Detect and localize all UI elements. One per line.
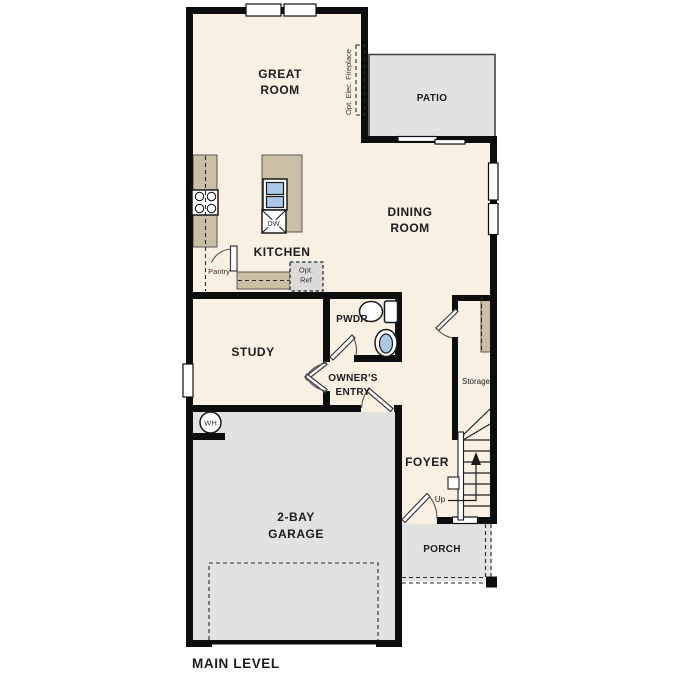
- storage-shelf: [481, 297, 491, 352]
- owners-entry-label: ENTRY: [335, 387, 370, 398]
- floor-plan-drawing: GREAT ROOM PATIO DINING ROOM KITCHEN STU…: [0, 0, 687, 687]
- kitchen-sink-icon: [263, 179, 287, 210]
- great-room-label: ROOM: [260, 83, 299, 97]
- dining-room-label: ROOM: [390, 221, 429, 235]
- water-heater-nook-wall: [186, 433, 225, 440]
- up-label: Up: [435, 495, 446, 504]
- garage-area: [190, 408, 398, 643]
- patio-slider-icon: [398, 137, 437, 142]
- study-label: STUDY: [231, 345, 274, 359]
- opt-fireplace-label: Opt. Elec. Fireplace: [344, 49, 353, 115]
- great-room-window-icon: [284, 4, 316, 16]
- storage-label: Storage: [462, 377, 491, 386]
- garage-label: GARAGE: [268, 527, 324, 541]
- dining-room-label: DINING: [388, 205, 433, 219]
- dishwasher-label: DW: [267, 219, 280, 228]
- powder-label: PWDR: [336, 314, 368, 325]
- water-heater-label: WH: [204, 419, 217, 428]
- porch-label: PORCH: [423, 544, 461, 555]
- great-room-window-icon: [246, 4, 281, 16]
- opt-ref-label: Ref: [300, 276, 313, 285]
- study-window-icon: [183, 364, 193, 397]
- porch-post: [486, 577, 497, 588]
- kitchen-label: KITCHEN: [254, 245, 311, 259]
- patio-label: PATIO: [417, 93, 448, 104]
- front-window-icon: [453, 517, 478, 524]
- plan-title: MAIN LEVEL: [192, 656, 280, 671]
- foyer-label: FOYER: [405, 455, 449, 469]
- great-room-label: GREAT: [258, 67, 302, 81]
- pantry-label: Pantry: [208, 267, 230, 276]
- dining-window-icon: [489, 204, 499, 235]
- opt-ref-label: Opt.: [299, 266, 313, 275]
- powder-sink-icon: [375, 330, 397, 357]
- garage-label: 2-BAY: [277, 510, 314, 524]
- patio-slider-icon: [435, 140, 465, 145]
- floor-plan: GREAT ROOM PATIO DINING ROOM KITCHEN STU…: [0, 0, 687, 687]
- owners-entry-label: OWNER'S: [328, 373, 378, 384]
- dining-window-icon: [489, 163, 499, 200]
